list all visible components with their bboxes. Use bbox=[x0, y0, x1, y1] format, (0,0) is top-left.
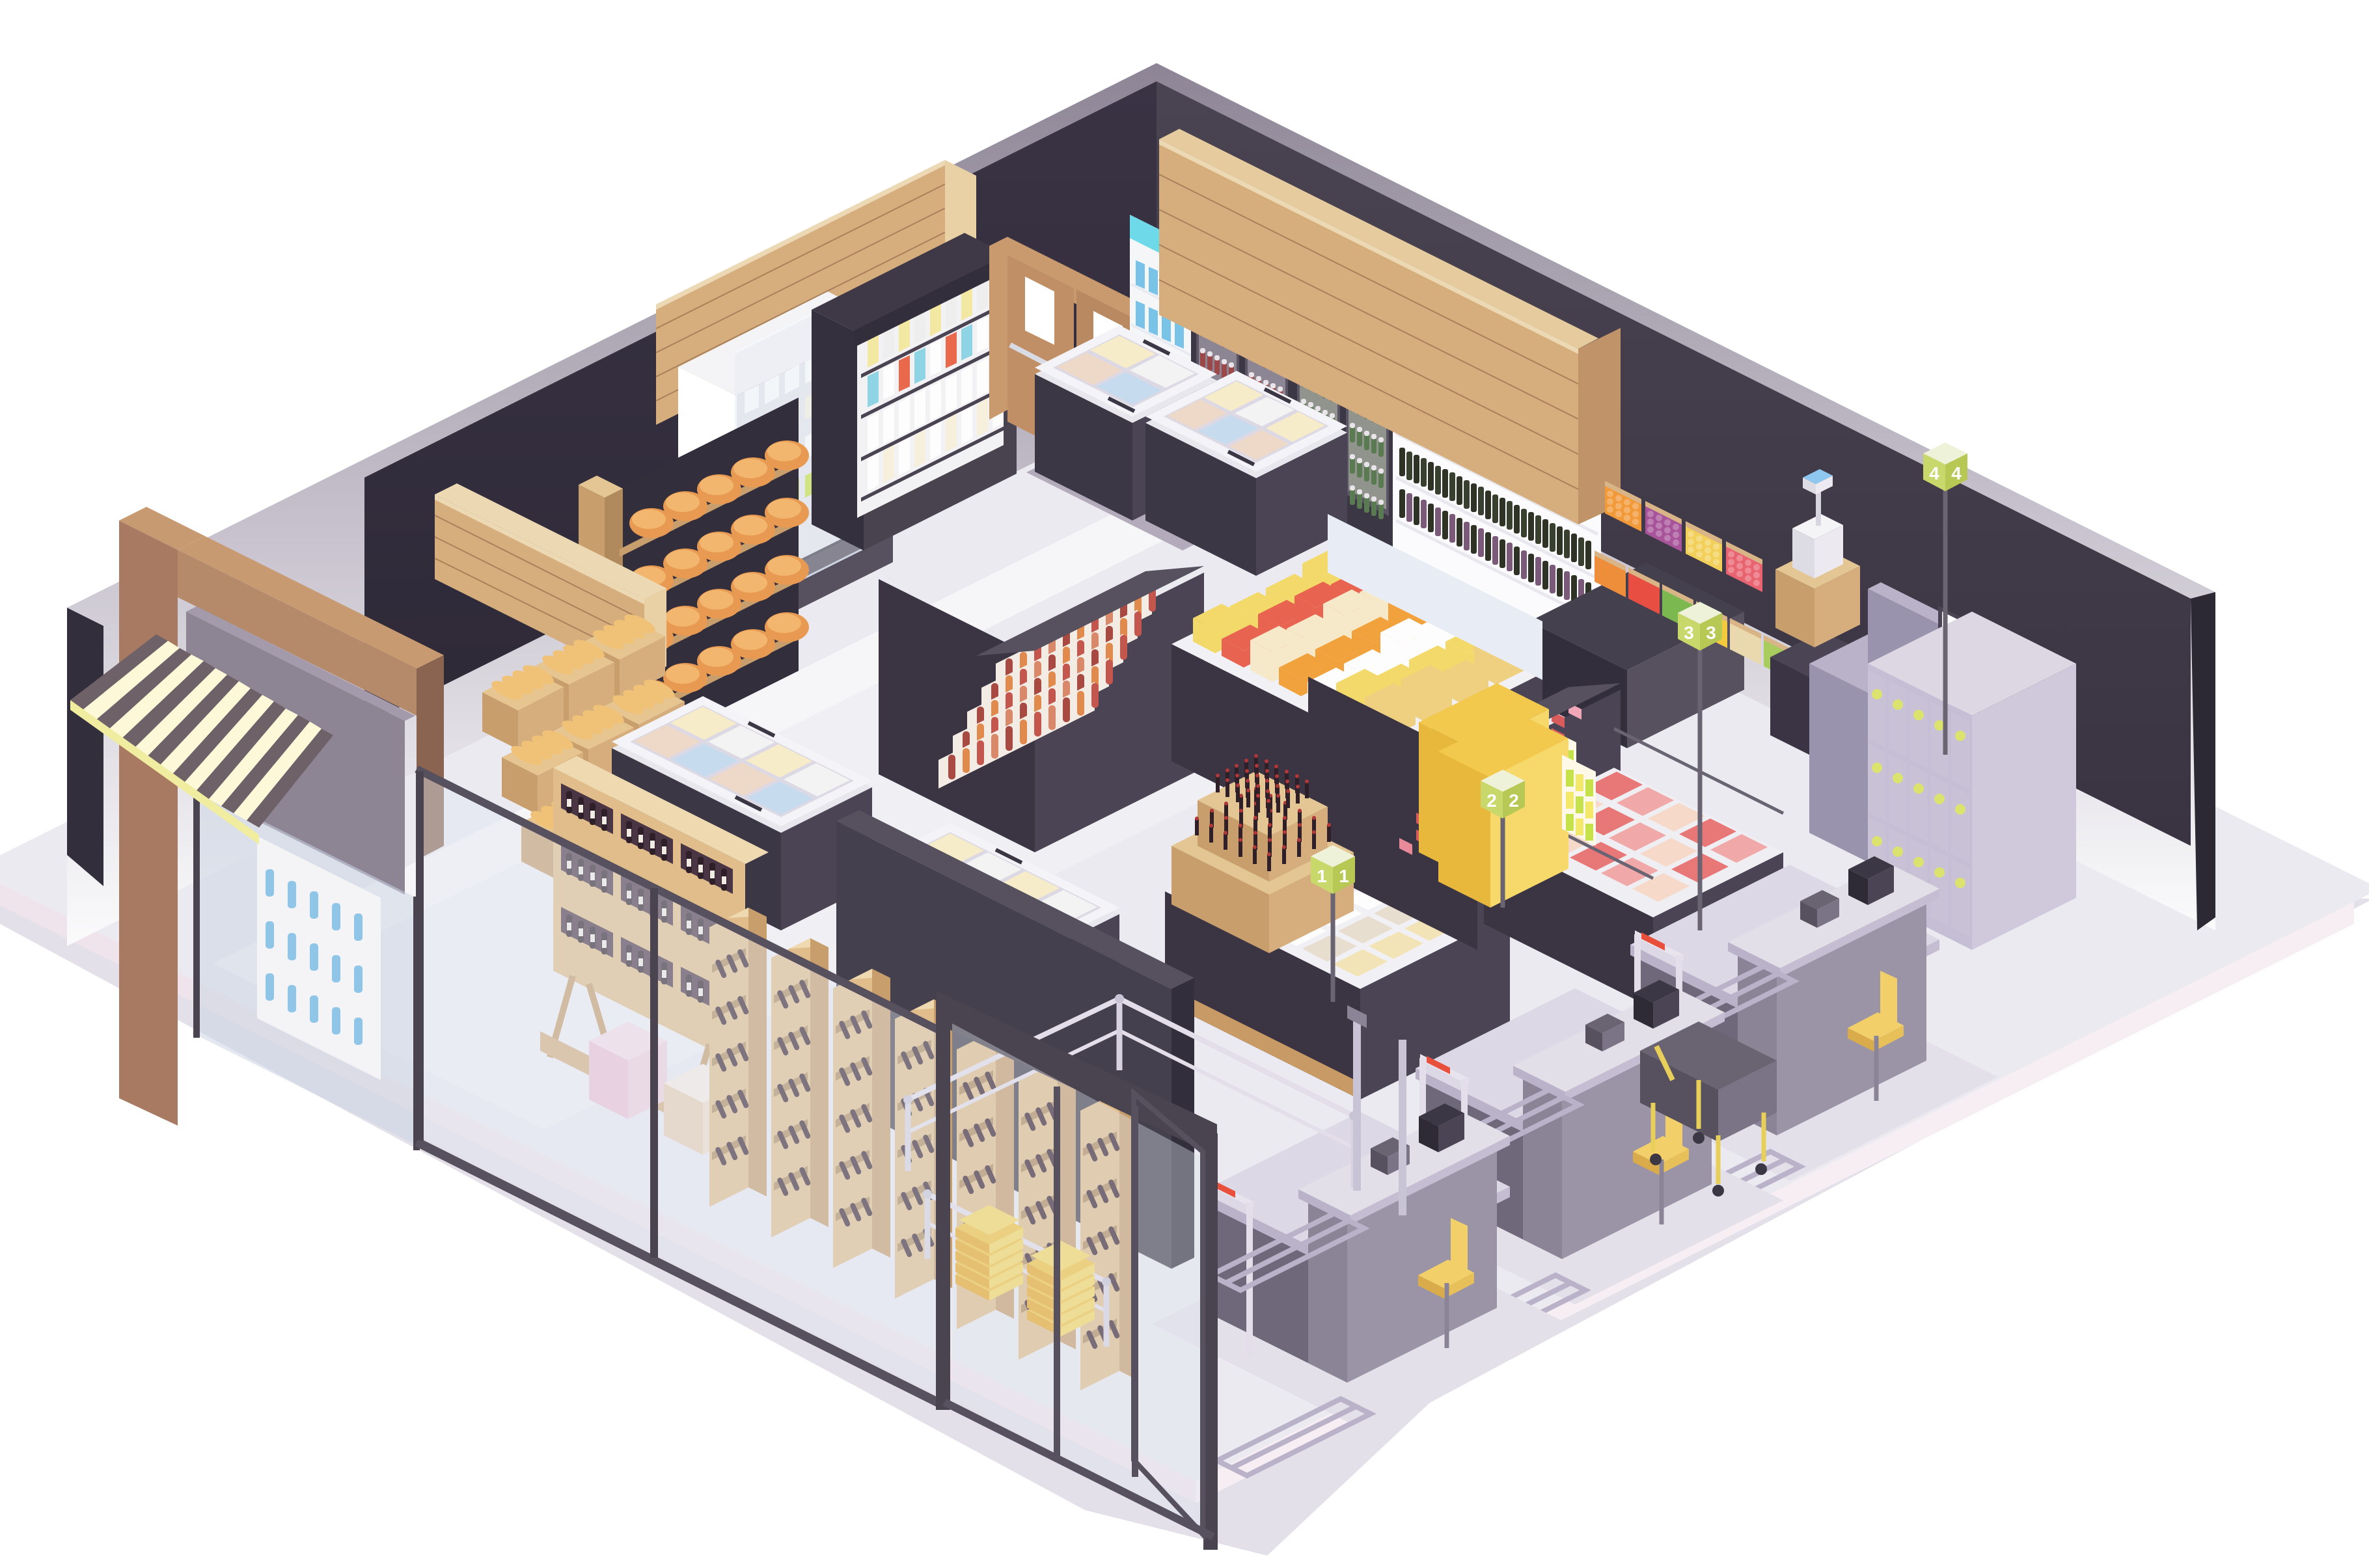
svg-text:2: 2 bbox=[1509, 791, 1519, 811]
svg-text:3: 3 bbox=[1706, 623, 1716, 643]
svg-text:3: 3 bbox=[1684, 623, 1694, 643]
svg-text:4: 4 bbox=[1951, 463, 1962, 483]
svg-text:2: 2 bbox=[1486, 791, 1497, 811]
svg-text:1: 1 bbox=[1339, 866, 1349, 886]
svg-text:4: 4 bbox=[1929, 463, 1939, 483]
svg-text:1: 1 bbox=[1317, 866, 1327, 886]
